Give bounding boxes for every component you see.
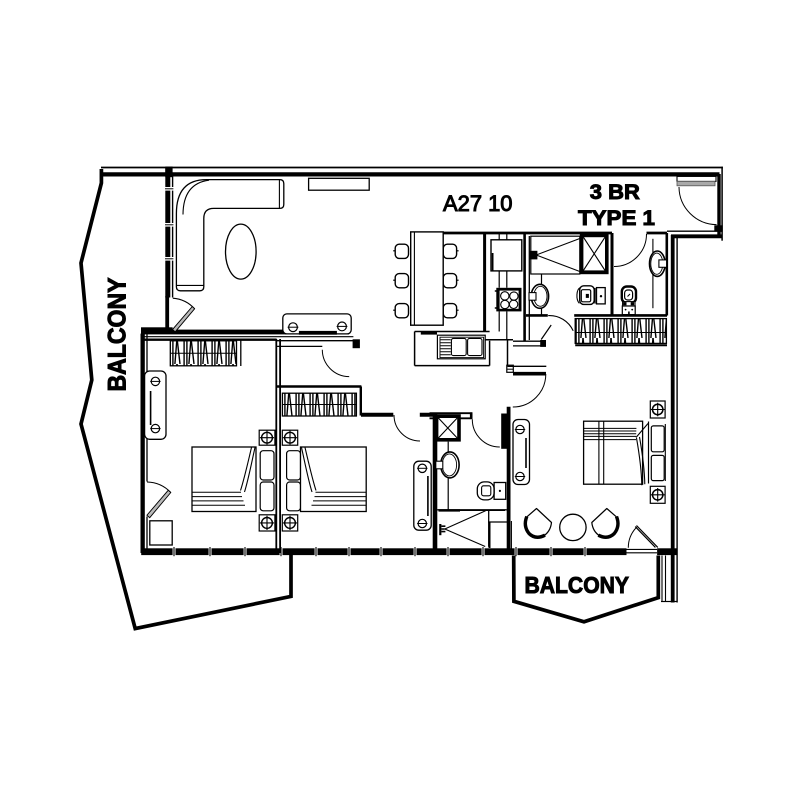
svg-text:3 BR: 3 BR (590, 181, 640, 204)
svg-text:BALCONY: BALCONY (525, 572, 630, 598)
svg-text:A27 10: A27 10 (443, 191, 513, 216)
svg-text:BALCONY: BALCONY (103, 277, 131, 391)
svg-text:TYPE 1: TYPE 1 (578, 207, 655, 230)
